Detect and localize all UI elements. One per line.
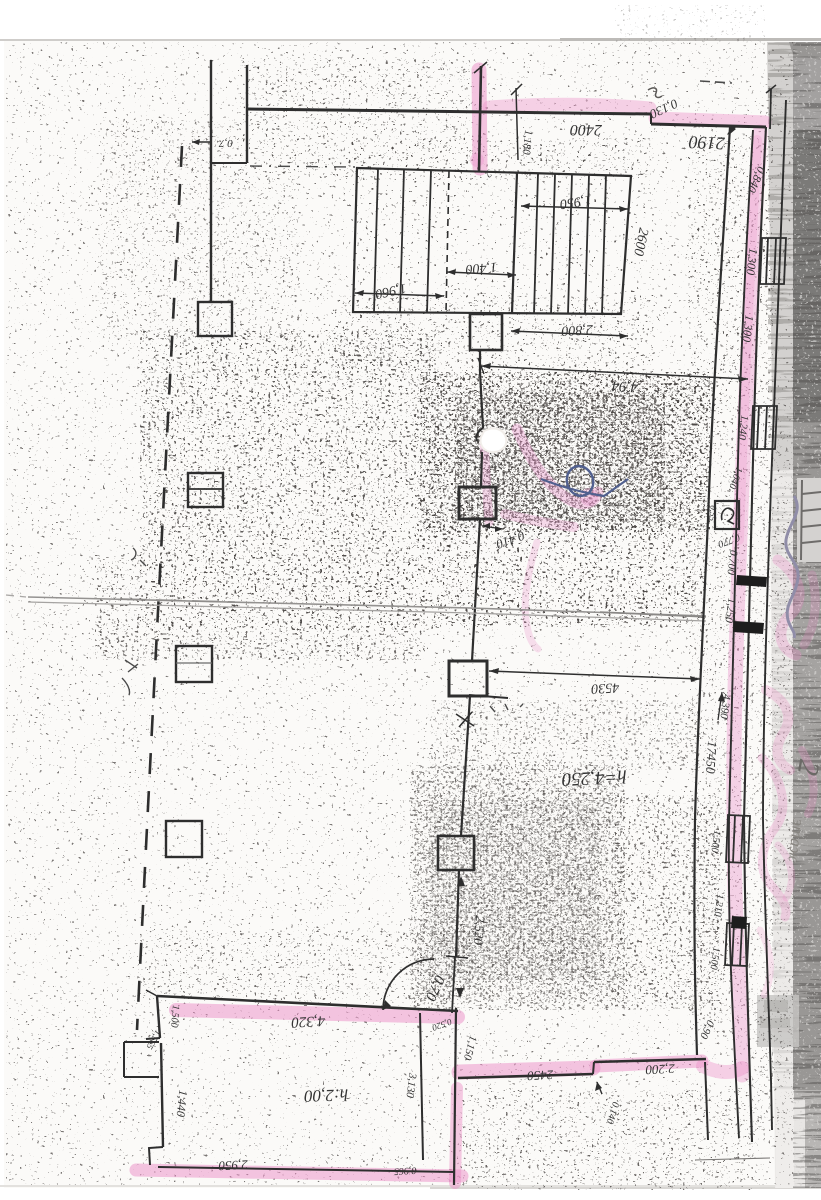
svg-text:1,440: 1,440	[174, 1089, 191, 1117]
svg-text:h=4,250: h=4,250	[561, 765, 628, 789]
svg-text:1,400: 1,400	[465, 259, 498, 277]
svg-text:0,7: 0,7	[219, 137, 233, 149]
svg-text:2,200: 2,200	[645, 1061, 675, 1078]
svg-text:1,180: 1,180	[520, 129, 534, 155]
svg-text:h:2,00: h:2,00	[303, 1085, 348, 1106]
svg-text:2450: 2450	[526, 1067, 553, 1083]
svg-text:2,520: 2,520	[471, 915, 488, 946]
svg-text:2400: 2400	[570, 121, 602, 138]
svg-text:2,800: 2,800	[561, 321, 593, 338]
svg-text:0,965: 0,965	[394, 1164, 417, 1176]
svg-text:0,55: 0,55	[707, 505, 718, 522]
svg-text:1,500: 1,500	[168, 1005, 181, 1028]
svg-text:4,94: 4,94	[611, 377, 639, 394]
svg-text:4530: 4530	[591, 679, 620, 695]
svg-text:2,950: 2,950	[218, 1157, 248, 1174]
svg-text:4,320: 4,320	[290, 1012, 325, 1030]
svg-text:2190: 2190	[688, 132, 725, 153]
svg-text:17450: 17450	[703, 741, 720, 775]
